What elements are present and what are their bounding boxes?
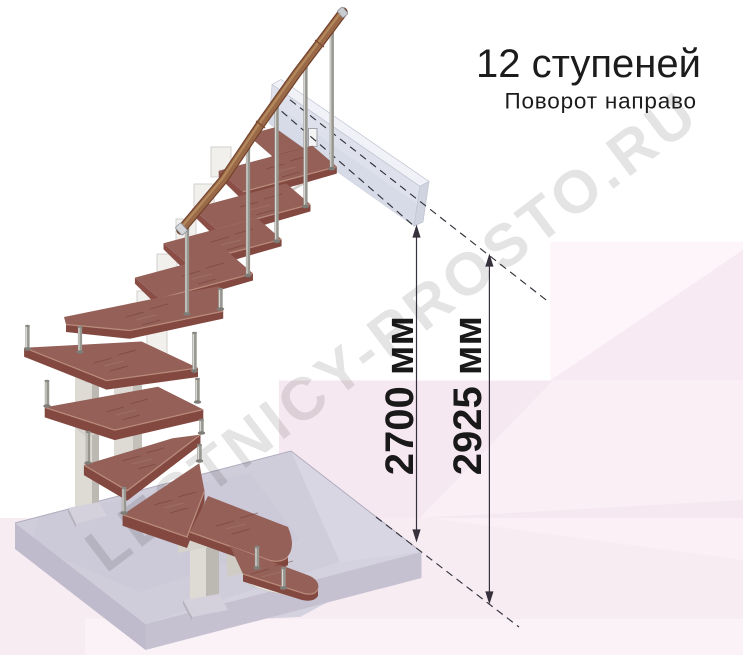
- svg-text:2700 мм: 2700 мм: [378, 316, 422, 475]
- svg-text:12 ступеней: 12 ступеней: [476, 42, 701, 86]
- svg-text:Поворот направо: Поворот направо: [505, 89, 697, 114]
- svg-text:2925 мм: 2925 мм: [446, 316, 490, 475]
